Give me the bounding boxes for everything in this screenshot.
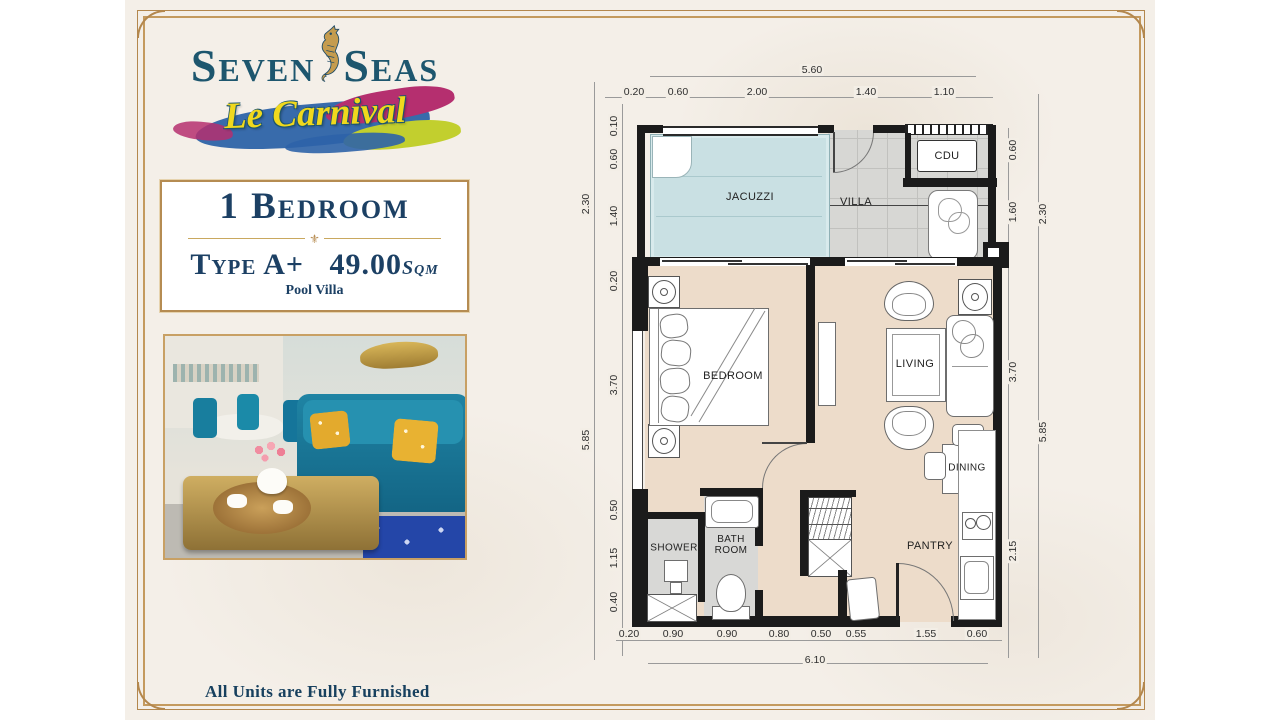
dimension-label: 2.15 (1007, 539, 1019, 563)
room-label: CDU (934, 150, 959, 162)
dimension-label: 0.20 (622, 86, 646, 98)
room-label: BEDROOM (703, 370, 763, 382)
room-label: VILLA (840, 196, 872, 208)
dimension-label: 5.85 (1037, 420, 1049, 444)
dimension-label: 0.40 (608, 590, 620, 614)
dimension-label: 0.60 (1007, 138, 1019, 162)
brochure-page: Seven Seas Le Carnival 1 Bedroom ⚜ Type … (0, 0, 1280, 720)
room-label: BATH ROOM (715, 534, 748, 556)
dimension-label: 0.20 (608, 269, 620, 293)
dimension-label: 3.70 (1007, 360, 1019, 384)
dimension-label: 5.85 (580, 428, 592, 452)
dimension-label: 0.55 (844, 628, 868, 640)
dimension-label: 2.00 (745, 86, 769, 98)
dimension-label: 0.60 (666, 86, 690, 98)
dimension-label: 2.30 (580, 192, 592, 216)
dimension-label: 1.15 (608, 546, 620, 570)
room-label: PANTRY (907, 540, 953, 552)
dimension-label: 0.50 (608, 498, 620, 522)
dimension-label: 0.10 (608, 114, 620, 138)
plan-labels-layer: JACUZZIVILLACDUBEDROOMLIVINGDININGSHOWER… (0, 0, 1280, 720)
dimension-label: 1.40 (854, 86, 878, 98)
dimension-label: 0.50 (809, 628, 833, 640)
dimension-label: 0.90 (661, 628, 685, 640)
dimension-label: 6.10 (803, 654, 827, 666)
dimension-label: 5.60 (800, 64, 824, 76)
room-label: LIVING (896, 358, 934, 370)
dimension-label: 1.60 (1007, 200, 1019, 224)
dimension-label: 3.70 (608, 373, 620, 397)
room-label: SHOWER (650, 543, 697, 554)
room-label: DINING (948, 463, 985, 474)
dimension-label: 0.80 (767, 628, 791, 640)
dimension-label: 0.20 (617, 628, 641, 640)
dimension-label: 1.10 (932, 86, 956, 98)
room-label: JACUZZI (726, 191, 774, 203)
dimension-label: 0.60 (965, 628, 989, 640)
dimension-label: 1.55 (914, 628, 938, 640)
dimension-label: 0.60 (608, 147, 620, 171)
dimension-label: 1.40 (608, 204, 620, 228)
dimension-label: 0.90 (715, 628, 739, 640)
floor-plan: JACUZZIVILLACDUBEDROOMLIVINGDININGSHOWER… (0, 0, 1280, 720)
dimension-label: 2.30 (1037, 202, 1049, 226)
